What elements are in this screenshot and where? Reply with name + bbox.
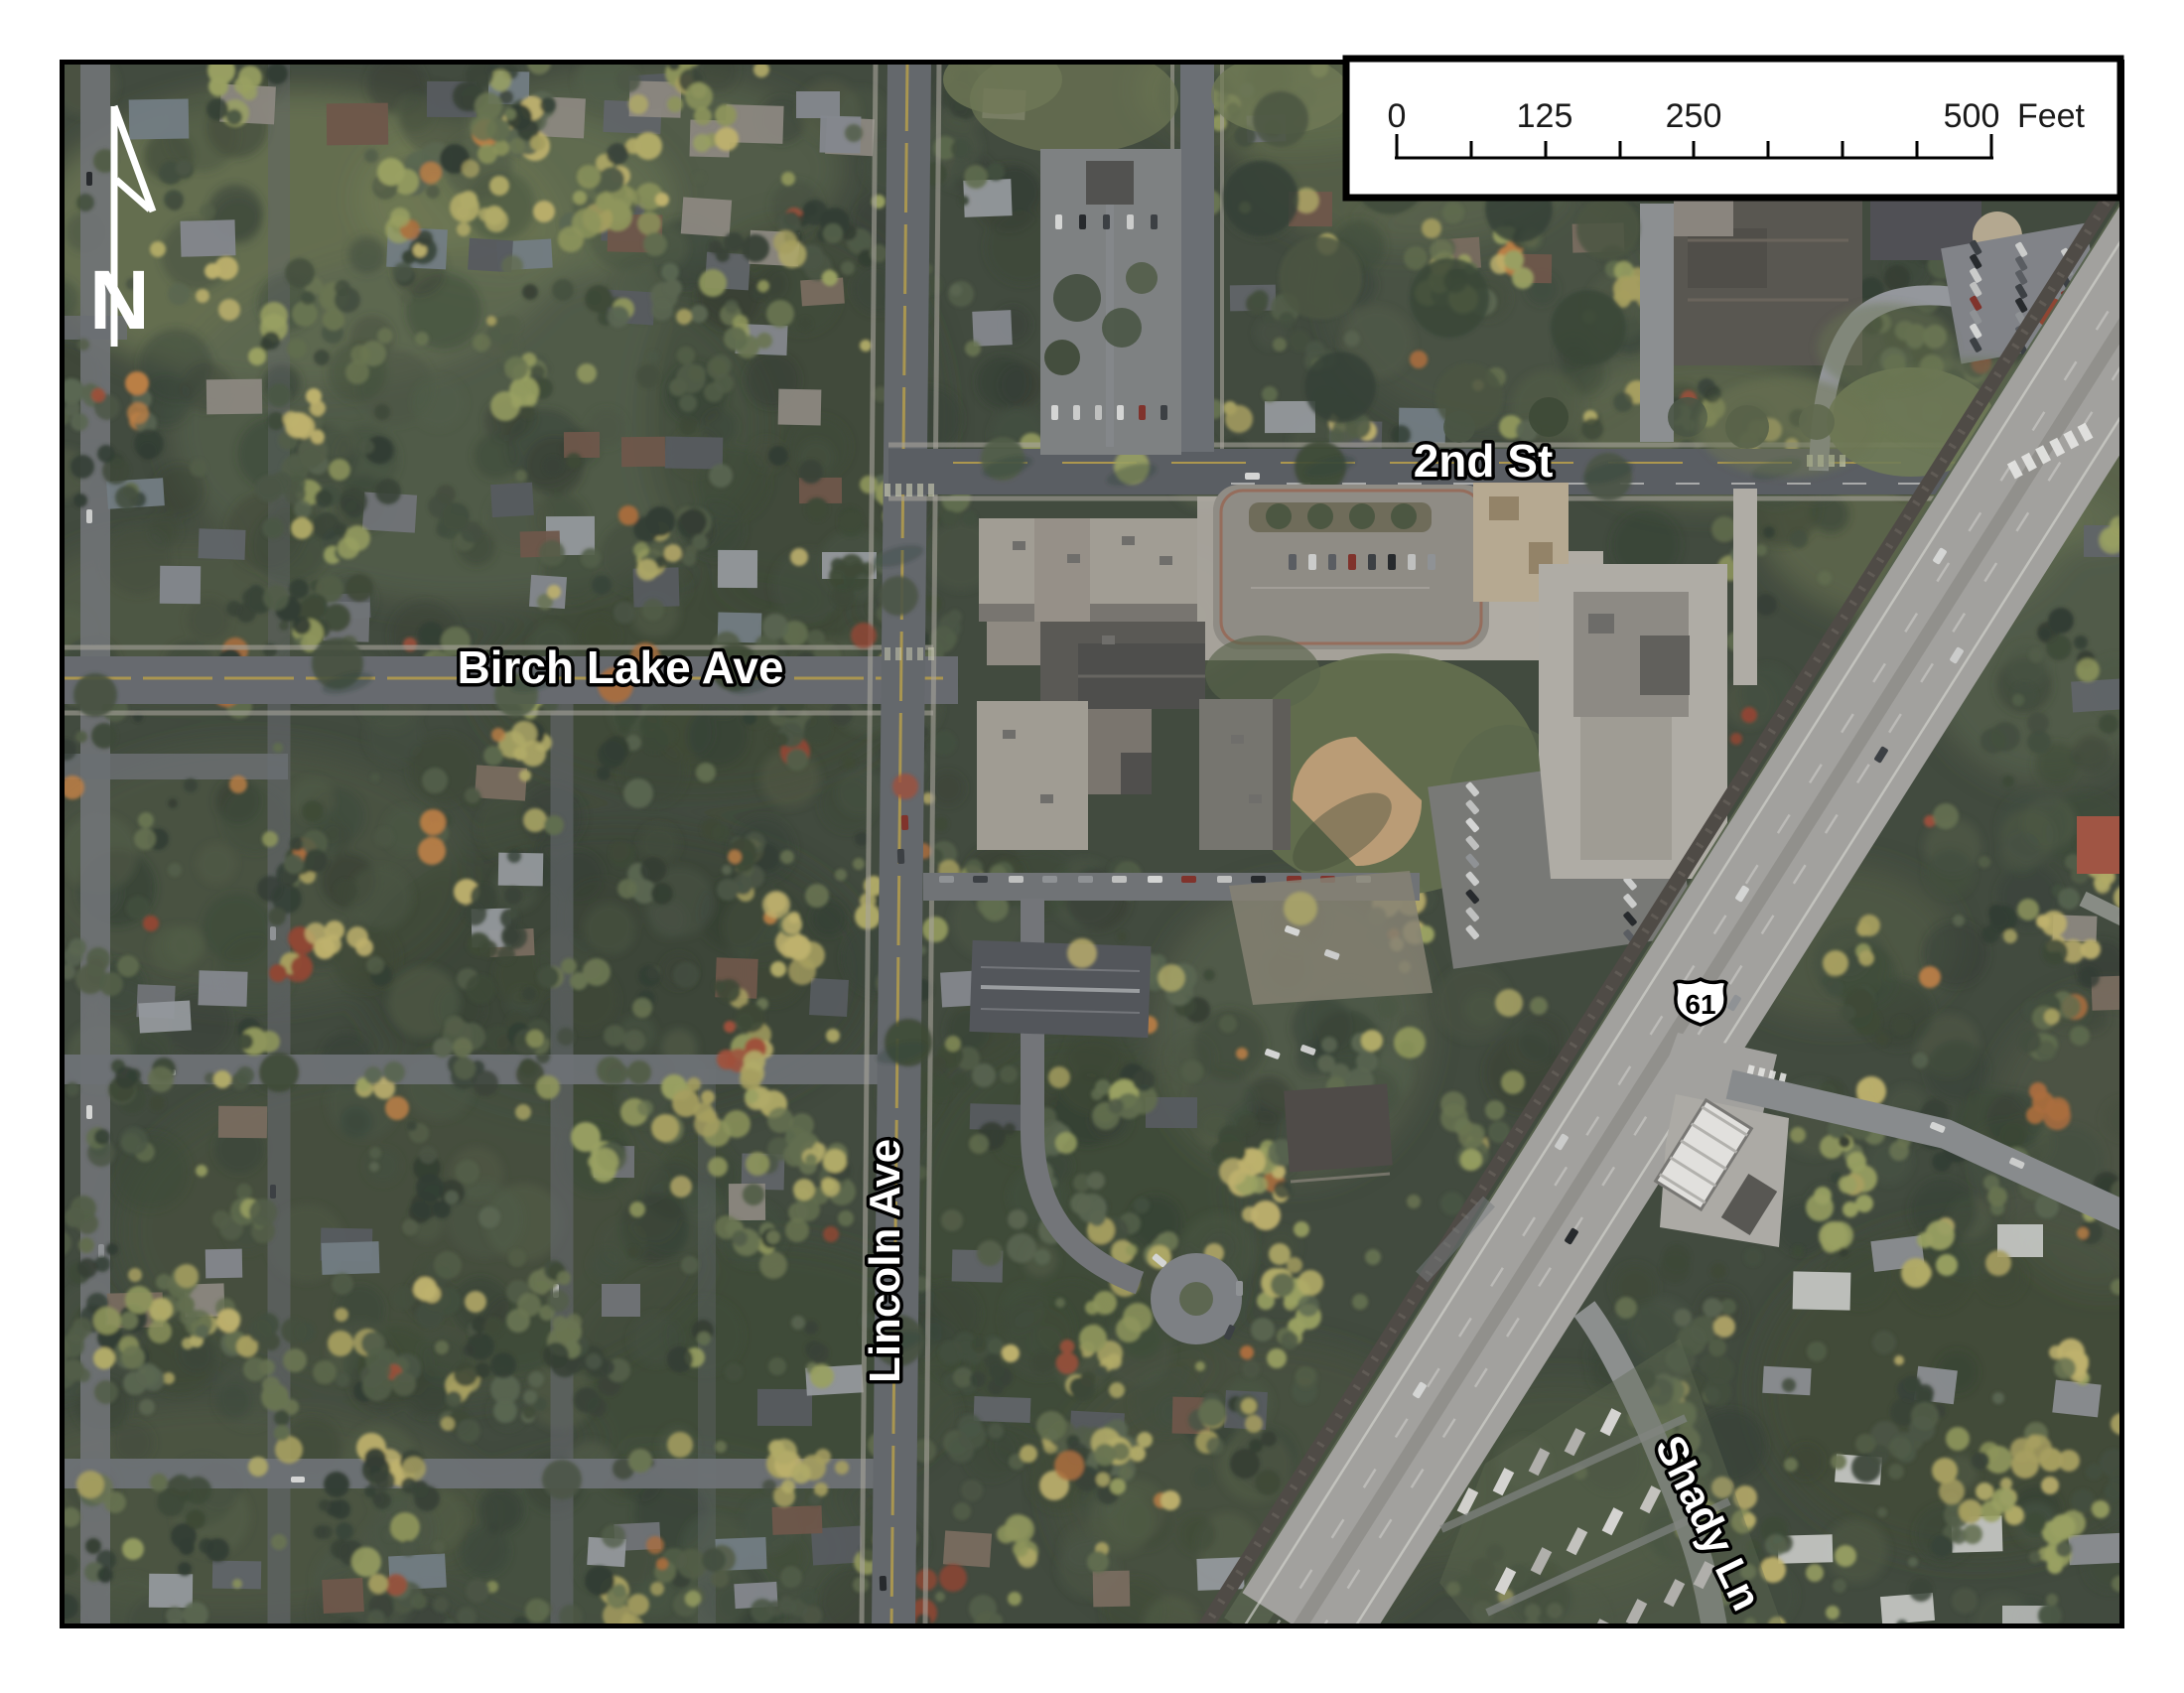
svg-text:125: 125 xyxy=(1517,97,1573,135)
svg-text:N: N xyxy=(89,253,150,347)
svg-text:Birch Lake Ave: Birch Lake Ave xyxy=(458,641,784,693)
svg-text:500: 500 xyxy=(1944,97,2000,135)
svg-text:250: 250 xyxy=(1666,97,1722,135)
svg-text:Feet: Feet xyxy=(2017,97,2086,135)
svg-text:Lincoln Ave: Lincoln Ave xyxy=(861,1139,909,1383)
svg-text:0: 0 xyxy=(1388,97,1407,135)
svg-text:2nd St: 2nd St xyxy=(1414,435,1554,487)
svg-text:61: 61 xyxy=(1685,989,1715,1020)
